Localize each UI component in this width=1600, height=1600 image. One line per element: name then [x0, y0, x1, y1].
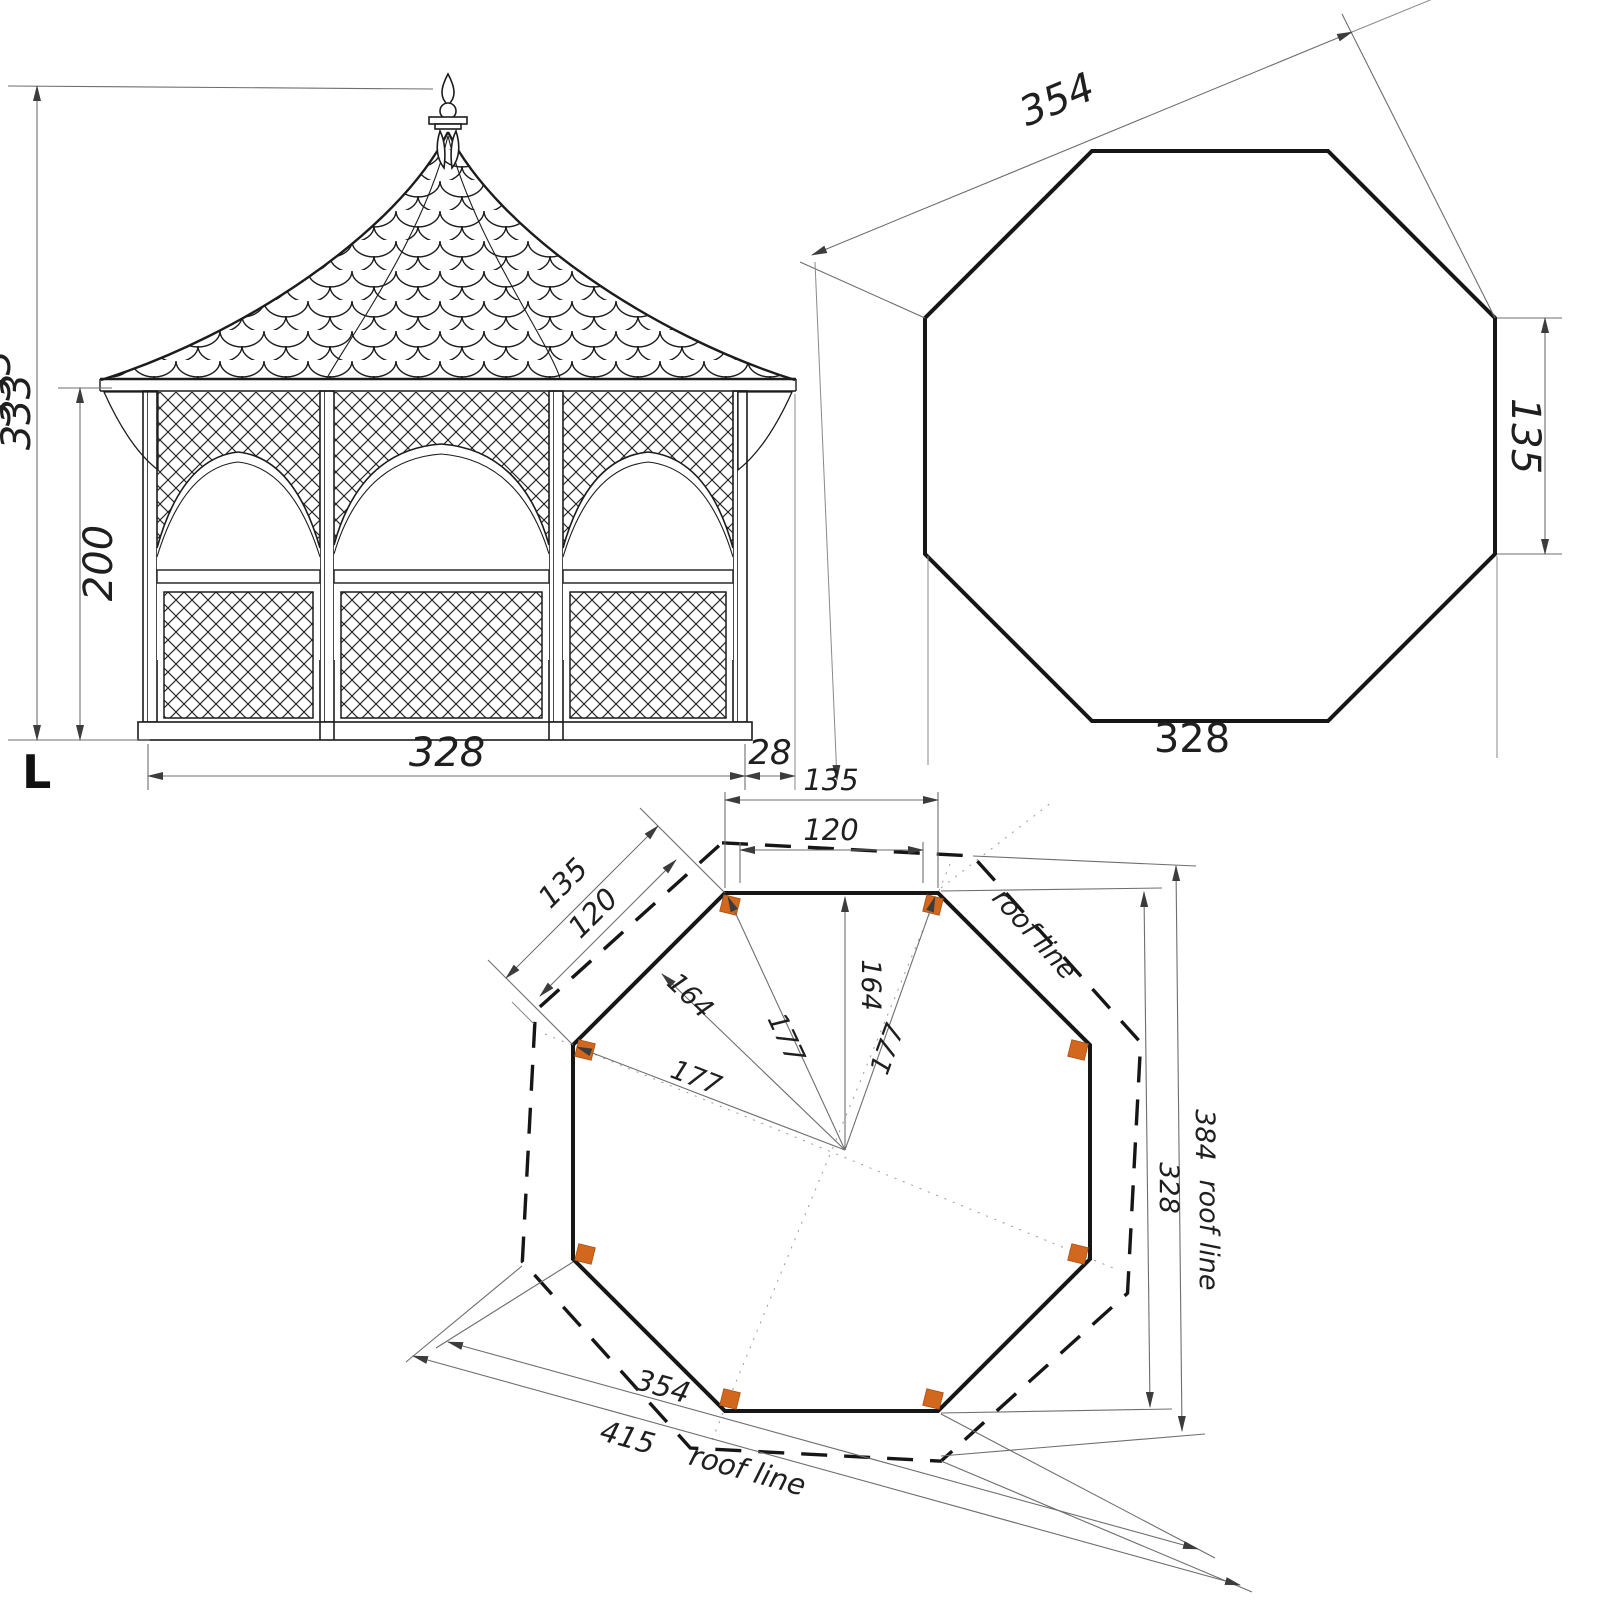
octagon-plan: 354 135 328: [800, 0, 1572, 780]
dim-side-length: 135: [1497, 318, 1562, 554]
dim-label-across-corners: 354: [1013, 64, 1101, 136]
dim-label-base-width: 328: [409, 730, 485, 776]
radial-dimensions: 164 164 177 177 177: [577, 897, 935, 1150]
dim-label-side-length: 135: [1502, 398, 1548, 474]
extension-dotted: [941, 802, 1052, 888]
dim-label-across-flats: 328: [1153, 1162, 1184, 1214]
dim-label-apothem-diagonal: 164: [661, 967, 720, 1025]
corner-posts: [575, 895, 1089, 1410]
dim-label-across-flats: 328: [1154, 716, 1230, 762]
dim-label-roof-across-corners-word: roof line: [686, 1438, 810, 1503]
dim-label-roof-across-flats: 384: [1189, 1109, 1220, 1161]
front-elevation: 333 333 200 328 28 L: [0, 74, 810, 799]
dim-label-wall-height: 200: [76, 525, 122, 601]
fascia-board: [100, 379, 796, 391]
roof-outline-dashed: [513, 834, 1150, 1471]
centerline-1: [712, 864, 950, 1440]
floor-octagon-outline: [573, 893, 1090, 1411]
roof-edge-label: roof line: [986, 883, 1083, 986]
dim-label-eave-overhang: 28: [748, 733, 791, 773]
dim-label-apothem-vertical: 164: [855, 959, 886, 1011]
dim-label-roof-across-flats-word: roof line: [1193, 1180, 1224, 1291]
corner-mark-letter: L: [22, 745, 51, 799]
gazebo-technical-drawing: 333 333 200 328 28 L 354: [0, 0, 1600, 1600]
dim-label-top-inner: 120: [803, 813, 858, 847]
bottom-dimensions: 354 415 roof line: [406, 1262, 1252, 1592]
dim-label-radius-left: 177: [666, 1054, 725, 1101]
centerline-2: [545, 1034, 1118, 1270]
octagon-outline: [925, 151, 1495, 721]
lattice-panels: [164, 592, 726, 718]
dim-across-corners: 354: [800, 0, 1572, 780]
eave-bracket-right: [738, 392, 792, 470]
floor-plan: 164 164 177 177 177 135 120 135 120: [406, 763, 1252, 1592]
dim-label-roof-across-corners: 415: [596, 1414, 658, 1462]
top-span-dimensions: 135 120: [725, 763, 938, 888]
dim-label-top-outer: 135: [803, 763, 858, 797]
dim-label-radius-top-right: 177: [865, 1020, 912, 1079]
dim-label-total-height: 333: [0, 374, 40, 450]
eave-bracket-left: [104, 392, 158, 470]
shingle-roof: [90, 74, 810, 391]
